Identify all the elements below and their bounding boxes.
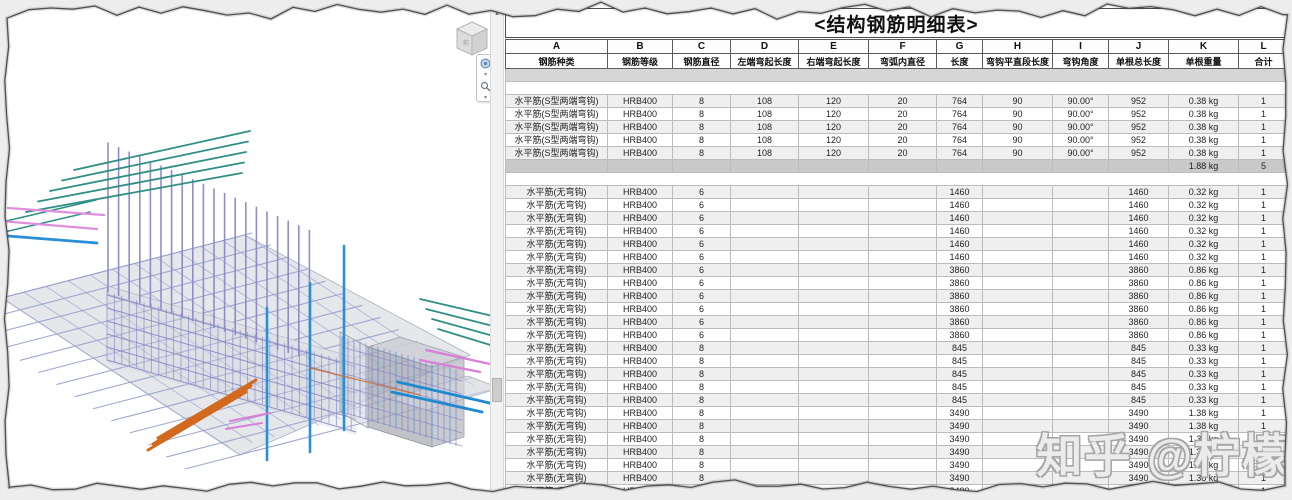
cell-L[interactable]: 1: [1239, 303, 1289, 316]
cell-E[interactable]: [799, 329, 869, 342]
cell-D[interactable]: [731, 199, 799, 212]
cell-E[interactable]: [799, 251, 869, 264]
cell-C[interactable]: 6: [673, 212, 731, 225]
cell-E[interactable]: [799, 264, 869, 277]
cell-K[interactable]: 0.86 kg: [1169, 303, 1239, 316]
cell-D[interactable]: [731, 303, 799, 316]
cell-B[interactable]: HRB400: [608, 368, 673, 381]
cell-I[interactable]: [1053, 251, 1109, 264]
cell-K[interactable]: 0.38 kg: [1169, 121, 1239, 134]
cell-E[interactable]: [799, 277, 869, 290]
column-letter-K[interactable]: K: [1169, 40, 1239, 54]
cell-E[interactable]: [799, 225, 869, 238]
cell-I[interactable]: [1053, 212, 1109, 225]
cell-D[interactable]: 108: [731, 134, 799, 147]
cell-C[interactable]: 6: [673, 225, 731, 238]
cell-K[interactable]: 0.86 kg: [1169, 316, 1239, 329]
cell-D[interactable]: [731, 433, 799, 446]
cell-F[interactable]: [869, 186, 937, 199]
cell-G[interactable]: 3490: [937, 472, 983, 485]
cell-E[interactable]: [799, 459, 869, 472]
cell-D[interactable]: [731, 277, 799, 290]
cell-F[interactable]: [869, 472, 937, 485]
cell-A[interactable]: 水平筋(无弯钩): [506, 238, 608, 251]
cell-H[interactable]: [983, 303, 1053, 316]
cell-D[interactable]: [731, 212, 799, 225]
cell-B[interactable]: HRB400: [608, 290, 673, 303]
cell-A[interactable]: 水平筋(S型两端弯钩): [506, 147, 608, 160]
cell-L[interactable]: 1: [1239, 381, 1289, 394]
cell-H[interactable]: [983, 355, 1053, 368]
cell-G[interactable]: 3490: [937, 433, 983, 446]
table-row[interactable]: 水平筋(S型两端弯钩)HRB4008108120207649090.00°952…: [506, 95, 1289, 108]
cell-B[interactable]: HRB400: [608, 264, 673, 277]
cell-G[interactable]: 3490: [937, 407, 983, 420]
cell-C[interactable]: 6: [673, 277, 731, 290]
cell-B[interactable]: HRB400: [608, 407, 673, 420]
cell-D[interactable]: [731, 186, 799, 199]
cell-G[interactable]: 845: [937, 342, 983, 355]
cell-D[interactable]: 108: [731, 95, 799, 108]
cell-L[interactable]: 1: [1239, 134, 1289, 147]
cell-G[interactable]: 3490: [937, 485, 983, 498]
cell-I[interactable]: [1053, 316, 1109, 329]
cell-I[interactable]: [1053, 225, 1109, 238]
cell-L[interactable]: 1: [1239, 316, 1289, 329]
cell-A[interactable]: 水平筋(无弯钩): [506, 186, 608, 199]
cell-K[interactable]: 0.32 kg: [1169, 225, 1239, 238]
cell-C[interactable]: 6: [673, 329, 731, 342]
table-row[interactable]: 水平筋(S型两端弯钩)HRB4008108120207649090.00°952…: [506, 108, 1289, 121]
cell-F[interactable]: [869, 264, 937, 277]
cell-E[interactable]: [799, 446, 869, 459]
vertical-scrollbar[interactable]: ▲: [490, 8, 504, 490]
cell-K[interactable]: 0.86 kg: [1169, 264, 1239, 277]
cell-L[interactable]: 1: [1239, 485, 1289, 498]
cell-G[interactable]: 764: [937, 121, 983, 134]
cell-K[interactable]: 1.38 kg: [1169, 407, 1239, 420]
cell-L[interactable]: 1: [1239, 147, 1289, 160]
cell-J[interactable]: 1460: [1109, 199, 1169, 212]
cell-A[interactable]: 水平筋(无弯钩): [506, 316, 608, 329]
cell-A[interactable]: 水平筋(无弯钩): [506, 407, 608, 420]
cell-K[interactable]: 0.33 kg: [1169, 394, 1239, 407]
cell-I[interactable]: [1053, 303, 1109, 316]
cell-H[interactable]: [983, 342, 1053, 355]
cell-B[interactable]: HRB400: [608, 355, 673, 368]
cell-A[interactable]: 水平筋(无弯钩): [506, 459, 608, 472]
cell-C[interactable]: 8: [673, 394, 731, 407]
cell-F[interactable]: [869, 381, 937, 394]
cell-A[interactable]: 水平筋(无弯钩): [506, 264, 608, 277]
cell-A[interactable]: 水平筋(无弯钩): [506, 329, 608, 342]
cell-J[interactable]: 3490: [1109, 485, 1169, 498]
cell-J[interactable]: 952: [1109, 121, 1169, 134]
cell-L[interactable]: 1: [1239, 199, 1289, 212]
summary-row[interactable]: 1.88 kg5: [506, 160, 1289, 173]
cell-L[interactable]: 1: [1239, 264, 1289, 277]
cell-E[interactable]: [799, 186, 869, 199]
cell-C[interactable]: 8: [673, 407, 731, 420]
cell-C[interactable]: 6: [673, 199, 731, 212]
cell-A[interactable]: 水平筋(无弯钩): [506, 394, 608, 407]
cell-H[interactable]: [983, 485, 1053, 498]
cell-H[interactable]: 90: [983, 134, 1053, 147]
table-row[interactable]: 水平筋(无弯钩)HRB4006386038600.86 kg1: [506, 264, 1289, 277]
cell-F[interactable]: 20: [869, 134, 937, 147]
column-letter-C[interactable]: C: [673, 40, 731, 54]
cell-E[interactable]: 120: [799, 108, 869, 121]
cell-E[interactable]: [799, 407, 869, 420]
cell-B[interactable]: HRB400: [608, 316, 673, 329]
column-header-K[interactable]: 单根重量: [1169, 54, 1239, 69]
table-row[interactable]: 水平筋(无弯钩)HRB4006146014600.32 kg1: [506, 186, 1289, 199]
cell-E[interactable]: [799, 433, 869, 446]
column-header-G[interactable]: 长度: [937, 54, 983, 69]
cell-H[interactable]: [983, 381, 1053, 394]
cell-J[interactable]: 845: [1109, 355, 1169, 368]
cell-A[interactable]: 水平筋(S型两端弯钩): [506, 121, 608, 134]
cell-B[interactable]: HRB400: [608, 212, 673, 225]
cell-A[interactable]: 水平筋(无弯钩): [506, 199, 608, 212]
cell-J[interactable]: 952: [1109, 108, 1169, 121]
table-row[interactable]: 水平筋(无弯钩)HRB40088458450.33 kg1: [506, 342, 1289, 355]
table-row[interactable]: 水平筋(无弯钩)HRB4006386038600.86 kg1: [506, 277, 1289, 290]
cell-A[interactable]: 水平筋(无弯钩): [506, 446, 608, 459]
cell-F[interactable]: [869, 446, 937, 459]
cell-H[interactable]: [983, 212, 1053, 225]
table-row[interactable]: 水平筋(无弯钩)HRB40088458450.33 kg1: [506, 355, 1289, 368]
cell-G[interactable]: 1460: [937, 225, 983, 238]
table-row[interactable]: 水平筋(无弯钩)HRB4008349034901.38 kg1: [506, 407, 1289, 420]
cell-H[interactable]: [983, 238, 1053, 251]
cell-A[interactable]: 水平筋(无弯钩): [506, 381, 608, 394]
cell-D[interactable]: [731, 407, 799, 420]
cell-C[interactable]: 8: [673, 446, 731, 459]
cell-J[interactable]: 1460: [1109, 212, 1169, 225]
cell-E[interactable]: [799, 316, 869, 329]
cell-J[interactable]: 952: [1109, 147, 1169, 160]
cell-K[interactable]: 0.86 kg: [1169, 329, 1239, 342]
cell-D[interactable]: [731, 394, 799, 407]
cell-L[interactable]: 1: [1239, 342, 1289, 355]
cell-G[interactable]: 1460: [937, 238, 983, 251]
cell-H[interactable]: [983, 394, 1053, 407]
steering-wheel-dropdown-caret[interactable]: ▾: [484, 73, 487, 77]
cell-L[interactable]: 1: [1239, 355, 1289, 368]
cell-D[interactable]: [731, 342, 799, 355]
cell-G[interactable]: 764: [937, 108, 983, 121]
table-row[interactable]: 水平筋(无弯钩)HRB4006146014600.32 kg1: [506, 238, 1289, 251]
cell-K[interactable]: 0.33 kg: [1169, 368, 1239, 381]
cell-K[interactable]: 0.32 kg: [1169, 238, 1239, 251]
column-header-D[interactable]: 左端弯起长度: [731, 54, 799, 69]
cell-A[interactable]: 水平筋(无弯钩): [506, 342, 608, 355]
cell-J[interactable]: 1460: [1109, 238, 1169, 251]
cell-B[interactable]: HRB400: [608, 225, 673, 238]
column-letter-H[interactable]: H: [983, 40, 1053, 54]
cell-F[interactable]: [869, 277, 937, 290]
cell-I[interactable]: [1053, 264, 1109, 277]
cell-H[interactable]: [983, 329, 1053, 342]
cell-E[interactable]: 120: [799, 121, 869, 134]
cell-E[interactable]: [799, 355, 869, 368]
view-cube[interactable]: 前: [452, 19, 492, 59]
cell-K[interactable]: 0.38 kg: [1169, 134, 1239, 147]
cell-I[interactable]: [1053, 277, 1109, 290]
cell-K[interactable]: 0.38 kg: [1169, 108, 1239, 121]
table-row[interactable]: 水平筋(无弯钩)HRB4006386038600.86 kg1: [506, 329, 1289, 342]
cell-H[interactable]: [983, 368, 1053, 381]
cell-C[interactable]: 8: [673, 433, 731, 446]
column-letter-E[interactable]: E: [799, 40, 869, 54]
cell-D[interactable]: 108: [731, 108, 799, 121]
cell-B[interactable]: HRB400: [608, 108, 673, 121]
cell-C[interactable]: 8: [673, 342, 731, 355]
cell-B[interactable]: HRB400: [608, 329, 673, 342]
cell-I[interactable]: [1053, 342, 1109, 355]
cell-F[interactable]: [869, 368, 937, 381]
cell-G[interactable]: 845: [937, 394, 983, 407]
cell-B[interactable]: HRB400: [608, 147, 673, 160]
cell-C[interactable]: 8: [673, 134, 731, 147]
cell-G[interactable]: 764: [937, 95, 983, 108]
cell-F[interactable]: [869, 433, 937, 446]
cell-I[interactable]: 90.00°: [1053, 134, 1109, 147]
table-row[interactable]: 水平筋(无弯钩)HRB40088458450.33 kg1: [506, 394, 1289, 407]
cell-B[interactable]: HRB400: [608, 485, 673, 498]
cell-J[interactable]: 1460: [1109, 225, 1169, 238]
3d-model-view[interactable]: 前 ▾ ▾: [0, 0, 500, 500]
table-row[interactable]: 水平筋(无弯钩)HRB40088458450.33 kg1: [506, 368, 1289, 381]
cell-B[interactable]: HRB400: [608, 199, 673, 212]
column-letter-L[interactable]: L: [1239, 40, 1289, 54]
cell-D[interactable]: [731, 264, 799, 277]
cell-F[interactable]: 20: [869, 147, 937, 160]
cell-A[interactable]: 水平筋(无弯钩): [506, 355, 608, 368]
cell-D[interactable]: [731, 225, 799, 238]
cell-I[interactable]: [1053, 355, 1109, 368]
cell-G[interactable]: 3490: [937, 446, 983, 459]
cell-B[interactable]: HRB400: [608, 121, 673, 134]
cell-I[interactable]: [1053, 394, 1109, 407]
cell-L[interactable]: 1: [1239, 108, 1289, 121]
scrollbar-thumb[interactable]: [492, 378, 502, 402]
cell-E[interactable]: [799, 303, 869, 316]
cell-C[interactable]: 6: [673, 186, 731, 199]
table-row[interactable]: 水平筋(无弯钩)HRB4006146014600.32 kg1: [506, 225, 1289, 238]
cell-I[interactable]: [1053, 381, 1109, 394]
cell-H[interactable]: [983, 251, 1053, 264]
cell-K[interactable]: 0.32 kg: [1169, 186, 1239, 199]
cell-C[interactable]: 6: [673, 290, 731, 303]
cell-H[interactable]: [983, 316, 1053, 329]
scrollbar-up-icon[interactable]: ▲: [491, 8, 503, 20]
cell-F[interactable]: [869, 394, 937, 407]
column-letter-D[interactable]: D: [731, 40, 799, 54]
cell-K[interactable]: 0.86 kg: [1169, 277, 1239, 290]
cell-L[interactable]: 1: [1239, 238, 1289, 251]
cell-J[interactable]: 845: [1109, 342, 1169, 355]
cell-E[interactable]: 120: [799, 95, 869, 108]
cell-J[interactable]: 845: [1109, 368, 1169, 381]
cell-L[interactable]: 1: [1239, 290, 1289, 303]
cell-K[interactable]: 0.32 kg: [1169, 212, 1239, 225]
cell-D[interactable]: [731, 316, 799, 329]
cell-I[interactable]: 90.00°: [1053, 147, 1109, 160]
cell-D[interactable]: [731, 381, 799, 394]
cell-G[interactable]: 3860: [937, 329, 983, 342]
cell-C[interactable]: 8: [673, 420, 731, 433]
cell-B[interactable]: HRB400: [608, 446, 673, 459]
cell-J[interactable]: 952: [1109, 95, 1169, 108]
table-row[interactable]: 水平筋(无弯钩)HRB4006146014600.32 kg1: [506, 212, 1289, 225]
cell-C[interactable]: 6: [673, 264, 731, 277]
column-header-F[interactable]: 弯弧内直径: [869, 54, 937, 69]
cell-F[interactable]: [869, 199, 937, 212]
cell-H[interactable]: 90: [983, 108, 1053, 121]
cell-C[interactable]: 8: [673, 485, 731, 498]
column-header-J[interactable]: 单根总长度: [1109, 54, 1169, 69]
cell-D[interactable]: [731, 485, 799, 498]
cell-B[interactable]: HRB400: [608, 433, 673, 446]
cell-J[interactable]: 3860: [1109, 277, 1169, 290]
cell-E[interactable]: [799, 472, 869, 485]
cell-G[interactable]: 3860: [937, 264, 983, 277]
cell-B[interactable]: HRB400: [608, 342, 673, 355]
cell-F[interactable]: [869, 316, 937, 329]
cell-I[interactable]: 90.00°: [1053, 95, 1109, 108]
cell-B[interactable]: HRB400: [608, 394, 673, 407]
cell-D[interactable]: [731, 251, 799, 264]
cell-J[interactable]: 1460: [1109, 251, 1169, 264]
zoom-dropdown-caret[interactable]: ▾: [484, 96, 487, 100]
cell-I[interactable]: [1053, 199, 1109, 212]
cell-H[interactable]: 90: [983, 147, 1053, 160]
column-header-B[interactable]: 钢筋等级: [608, 54, 673, 69]
cell-J[interactable]: 3860: [1109, 329, 1169, 342]
cell-G[interactable]: 1460: [937, 212, 983, 225]
cell-I[interactable]: [1053, 186, 1109, 199]
cell-F[interactable]: [869, 238, 937, 251]
cell-A[interactable]: 水平筋(无弯钩): [506, 251, 608, 264]
cell-H[interactable]: [983, 277, 1053, 290]
cell-A[interactable]: 水平筋(S型两端弯钩): [506, 134, 608, 147]
cell-H[interactable]: 90: [983, 95, 1053, 108]
3d-model-canvas[interactable]: [0, 0, 500, 500]
cell-L[interactable]: 1: [1239, 329, 1289, 342]
cell-K[interactable]: 0.38 kg: [1169, 95, 1239, 108]
cell-J[interactable]: 845: [1109, 381, 1169, 394]
table-row[interactable]: 水平筋(无弯钩)HRB4006386038600.86 kg1: [506, 316, 1289, 329]
cell-E[interactable]: [799, 368, 869, 381]
column-header-H[interactable]: 弯钩平直段长度: [983, 54, 1053, 69]
cell-E[interactable]: [799, 212, 869, 225]
cell-A[interactable]: 水平筋(S型两端弯钩): [506, 108, 608, 121]
cell-C[interactable]: 6: [673, 238, 731, 251]
cell-C[interactable]: 8: [673, 381, 731, 394]
cell-A[interactable]: 水平筋(无弯钩): [506, 433, 608, 446]
cell-H[interactable]: 90: [983, 121, 1053, 134]
cell-C[interactable]: 8: [673, 355, 731, 368]
cell-A[interactable]: 水平筋(无弯钩): [506, 290, 608, 303]
column-letter-A[interactable]: A: [506, 40, 608, 54]
cell-G[interactable]: 1460: [937, 186, 983, 199]
column-header-C[interactable]: 钢筋直径: [673, 54, 731, 69]
cell-G[interactable]: 764: [937, 134, 983, 147]
cell-E[interactable]: [799, 394, 869, 407]
cell-I[interactable]: [1053, 329, 1109, 342]
cell-J[interactable]: 1460: [1109, 186, 1169, 199]
cell-F[interactable]: [869, 251, 937, 264]
cell-J[interactable]: 3860: [1109, 316, 1169, 329]
cell-C[interactable]: 8: [673, 147, 731, 160]
cell-B[interactable]: HRB400: [608, 303, 673, 316]
cell-F[interactable]: [869, 212, 937, 225]
cell-A[interactable]: 水平筋(无弯钩): [506, 303, 608, 316]
cell-I[interactable]: [1053, 290, 1109, 303]
cell-K[interactable]: 0.86 kg: [1169, 290, 1239, 303]
cell-E[interactable]: [799, 199, 869, 212]
cell-F[interactable]: [869, 342, 937, 355]
cell-D[interactable]: [731, 238, 799, 251]
cell-A[interactable]: 水平筋(S型两端弯钩): [506, 95, 608, 108]
cell-H[interactable]: [983, 407, 1053, 420]
cell-B[interactable]: HRB400: [608, 251, 673, 264]
cell-A[interactable]: 水平筋(无弯钩): [506, 368, 608, 381]
cell-L[interactable]: 1: [1239, 95, 1289, 108]
cell-D[interactable]: 108: [731, 147, 799, 160]
cell-K[interactable]: 0.33 kg: [1169, 355, 1239, 368]
cell-B[interactable]: HRB400: [608, 381, 673, 394]
cell-H[interactable]: [983, 290, 1053, 303]
cell-J[interactable]: 3860: [1109, 290, 1169, 303]
cell-K[interactable]: 1.38 kg: [1169, 485, 1239, 498]
cell-L[interactable]: 1: [1239, 407, 1289, 420]
cell-B[interactable]: HRB400: [608, 238, 673, 251]
cell-I[interactable]: [1053, 368, 1109, 381]
column-letter-F[interactable]: F: [869, 40, 937, 54]
cell-G[interactable]: 845: [937, 381, 983, 394]
cell-F[interactable]: [869, 459, 937, 472]
cell-F[interactable]: [869, 485, 937, 498]
cell-D[interactable]: [731, 472, 799, 485]
column-header-A[interactable]: 钢筋种类: [506, 54, 608, 69]
cell-L[interactable]: 1: [1239, 186, 1289, 199]
cell-F[interactable]: [869, 355, 937, 368]
cell-D[interactable]: 108: [731, 121, 799, 134]
cell-G[interactable]: 845: [937, 355, 983, 368]
cell-C[interactable]: 6: [673, 303, 731, 316]
cell-A[interactable]: 水平筋(无弯钩): [506, 277, 608, 290]
cell-G[interactable]: 764: [937, 147, 983, 160]
column-letter-G[interactable]: G: [937, 40, 983, 54]
cell-J[interactable]: 3860: [1109, 264, 1169, 277]
cell-G[interactable]: 3860: [937, 303, 983, 316]
table-row[interactable]: 水平筋(无弯钩)HRB4006386038600.86 kg1: [506, 290, 1289, 303]
cell-F[interactable]: [869, 303, 937, 316]
cell-F[interactable]: 20: [869, 108, 937, 121]
cell-F[interactable]: [869, 329, 937, 342]
cell-H[interactable]: [983, 186, 1053, 199]
cell-C[interactable]: 6: [673, 316, 731, 329]
cell-F[interactable]: 20: [869, 95, 937, 108]
cell-L[interactable]: 1: [1239, 394, 1289, 407]
cell-D[interactable]: [731, 329, 799, 342]
cell-G[interactable]: 1460: [937, 251, 983, 264]
cell-I[interactable]: 90.00°: [1053, 108, 1109, 121]
cell-J[interactable]: 845: [1109, 394, 1169, 407]
